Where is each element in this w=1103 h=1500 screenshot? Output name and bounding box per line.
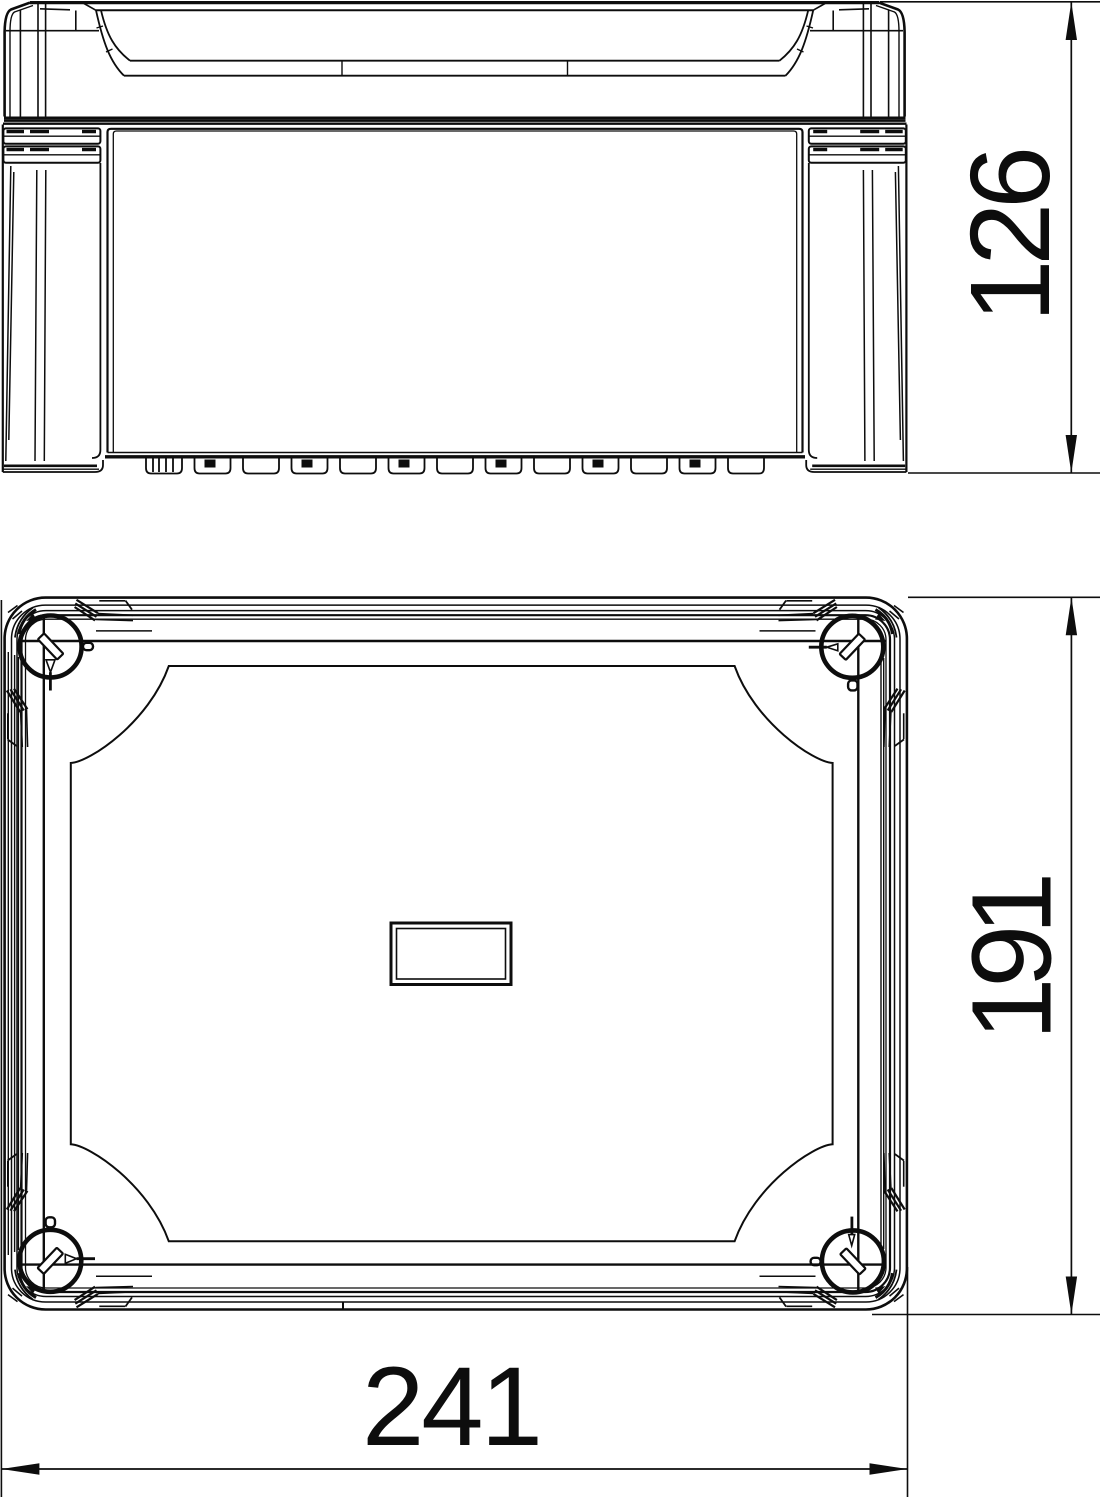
svg-text:241: 241 [362, 1344, 540, 1469]
svg-text:191: 191 [949, 877, 1075, 1041]
svg-text:126: 126 [947, 151, 1073, 323]
